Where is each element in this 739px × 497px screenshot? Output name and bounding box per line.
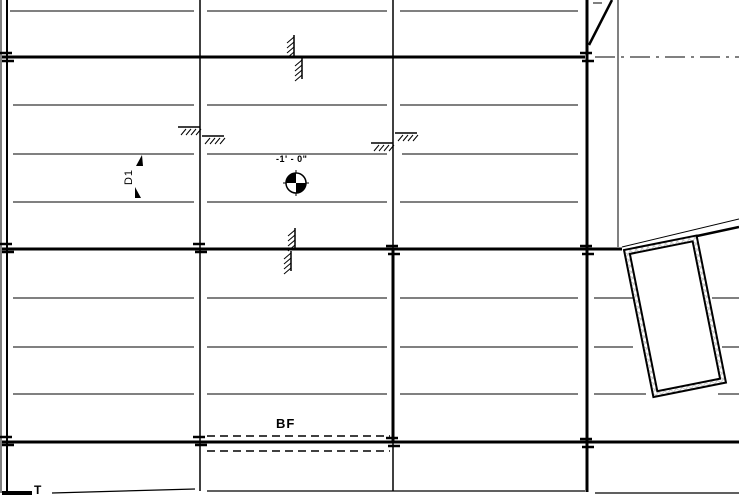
step-hatch-tick [284,268,291,274]
column-footing-detail [624,235,726,397]
step-hatch-tick [284,253,291,259]
datum-quadrant [296,183,306,193]
earth-hatch-tick [181,129,186,135]
bottom-of-footing-label: BF [276,416,295,431]
dimension-tick [135,187,141,198]
earth-hatch-tick [210,138,215,144]
earth-hatch-tick [384,145,389,151]
earth-hatch-tick [374,145,379,151]
earth-hatch-tick [205,138,210,144]
earth-hatch-tick [379,145,384,151]
earth-hatch-tick [403,135,408,141]
step-hatch-tick [288,230,295,236]
datum-elevation-label: -1' - 0" [276,154,307,164]
earth-hatch-tick [408,135,413,141]
step-hatch-tick [295,70,302,76]
cad-viewport[interactable]: -1' - 0" D1 BF T [0,0,739,497]
step-hatch-tick [287,47,294,53]
step-hatch-tick [295,65,302,71]
datum-quadrant [286,173,296,183]
step-hatch-tick [284,258,291,264]
earth-hatch-tick [186,129,191,135]
eave-edge-line [697,227,739,236]
step-hatch-tick [295,75,302,81]
step-hatch-tick [288,240,295,246]
step-hatch-tick [284,263,291,269]
boundary-line [52,489,195,493]
step-hatch-tick [287,42,294,48]
earth-hatch-tick [398,135,403,141]
earth-hatch-tick [413,135,418,141]
step-hatch-tick [295,60,302,66]
t-mark-label: T [34,483,41,497]
dimension-d1-label: D1 [123,162,135,192]
earth-hatch-tick [220,138,225,144]
wall-end-cap [2,491,32,495]
earth-hatch-tick [191,129,196,135]
ramp-edge-line [589,0,612,45]
step-hatch-tick [287,37,294,43]
column-inner-face [630,241,720,391]
earth-hatch-tick [215,138,220,144]
step-hatch-tick [288,235,295,241]
dimension-tick [136,155,143,166]
drawing-geometry [0,0,739,495]
drawing-svg [0,0,739,497]
